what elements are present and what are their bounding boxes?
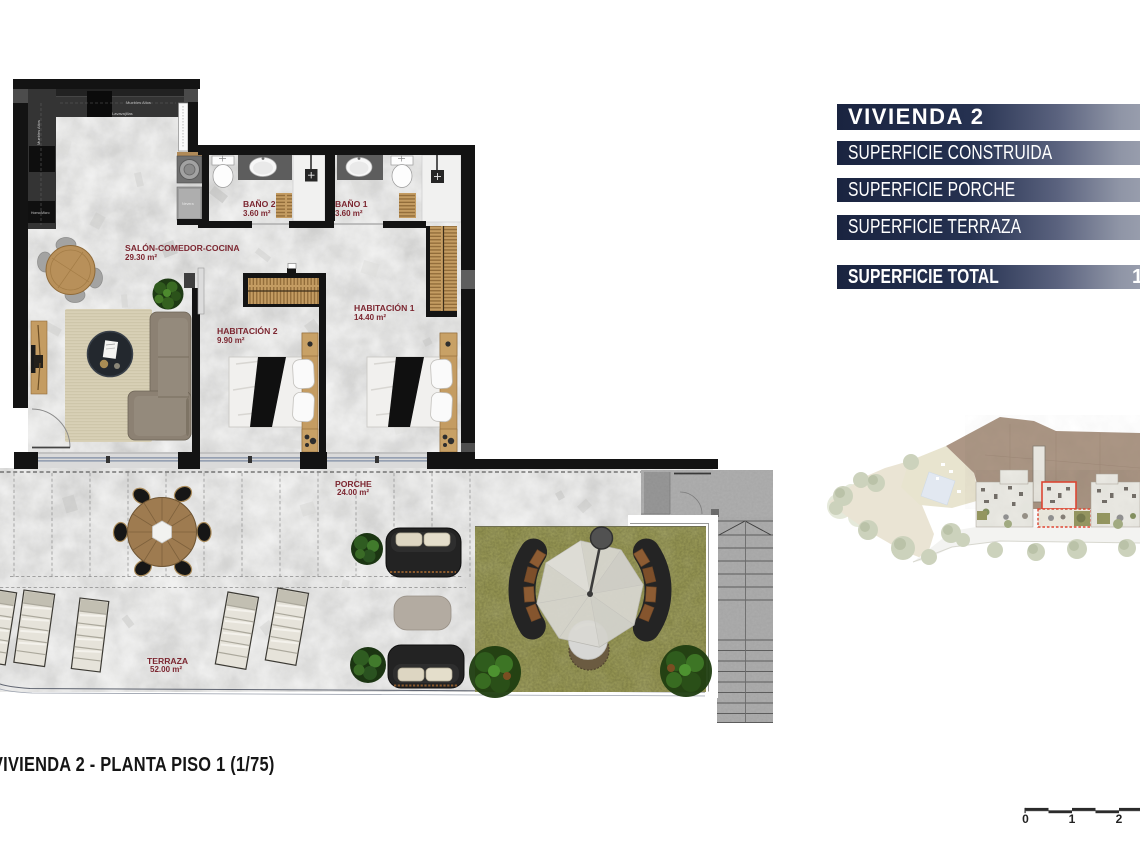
svg-text:3.60 m²: 3.60 m² [243, 209, 271, 218]
svg-text:BAÑO 2: BAÑO 2 [243, 199, 276, 209]
svg-text:BAÑO 1: BAÑO 1 [335, 199, 368, 209]
svg-text:9.90 m²: 9.90 m² [217, 336, 245, 345]
svg-text:1: 1 [1069, 812, 1076, 826]
svg-text:HABITACIÓN 1: HABITACIÓN 1 [354, 302, 415, 313]
svg-text:0: 0 [1022, 812, 1029, 826]
svg-text:SALÓN-COMEDOR-COCINA: SALÓN-COMEDOR-COCINA [125, 242, 240, 253]
svg-text:3.60 m²: 3.60 m² [335, 209, 363, 218]
svg-text:Lavavajillas: Lavavajillas [112, 111, 133, 116]
svg-text:Horno/Micro: Horno/Micro [31, 211, 50, 215]
svg-text:Muebles Altos: Muebles Altos [36, 120, 41, 145]
svg-text:29.30 m²: 29.30 m² [125, 253, 157, 262]
svg-text:HABITACIÓN 2: HABITACIÓN 2 [217, 325, 278, 336]
svg-text:Muebles Altos: Muebles Altos [126, 100, 151, 105]
svg-text:52.00 m²: 52.00 m² [150, 665, 182, 674]
svg-text:24.00 m²: 24.00 m² [337, 488, 369, 497]
svg-text:2: 2 [1116, 812, 1123, 826]
svg-text:Nevera: Nevera [182, 202, 194, 206]
svg-text:14.40 m²: 14.40 m² [354, 313, 386, 322]
